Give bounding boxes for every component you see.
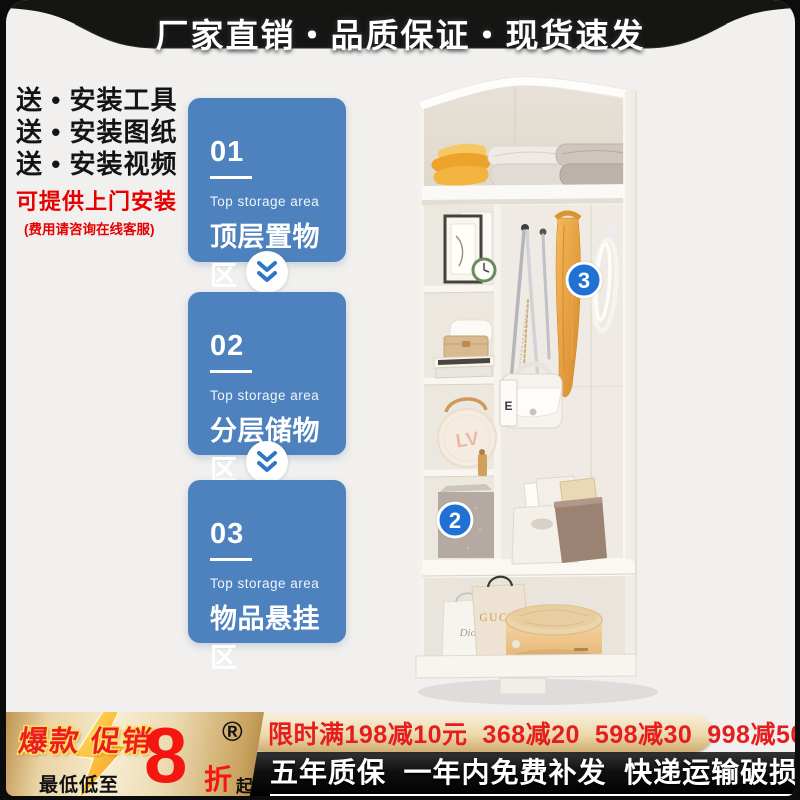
discount-digit: 8 <box>144 718 187 792</box>
product-photo-corner-shelf: LV <box>388 60 718 715</box>
gift-line-tools: 送 • 安装工具 <box>16 84 191 116</box>
install-note-text: (费用请咨询在线客服) <box>24 218 191 238</box>
feature-card-top-storage: 01 Top storage area 顶层置物区 <box>188 98 346 262</box>
feature-subtitle-en: Top storage area <box>210 194 346 209</box>
hot-sale-panel: 爆款 促销 最低低至 8 ® 折 起 <box>6 712 264 796</box>
marker-number: 3 <box>578 268 590 293</box>
marker-badge-2: 2 <box>437 502 474 539</box>
marker-badge-3: 3 <box>566 262 603 299</box>
gift-line-video: 送 • 安装视频 <box>16 148 191 180</box>
coupon-pill: 限时满198减10元 368减20 598减30 998减50 <box>246 714 713 752</box>
right-side-panel <box>624 91 636 664</box>
feature-number: 01 <box>210 138 346 167</box>
feature-underline <box>210 176 252 179</box>
chevron-down-connector <box>246 251 288 293</box>
promo-banner: 五年质保 一年内免费补发 快递运输破损包赔 限时满198减10元 368减20 … <box>6 712 795 796</box>
chevron-down-icon <box>252 257 282 287</box>
hot-sale-label: 爆款 促销 <box>16 718 155 760</box>
base-board <box>416 654 636 678</box>
feature-subtitle-en: Top storage area <box>210 388 346 403</box>
service-guarantee-bar: 五年质保 一年内免费补发 快递运输破损包赔 <box>242 752 795 796</box>
picture-frames-and-clock <box>445 212 495 284</box>
feature-card-layered-storage: 02 Top storage area 分层储物区 <box>188 292 346 455</box>
tag-letter: E <box>504 399 512 413</box>
service-guarantee-text: 五年质保 一年内免费补发 快递运输破损包赔 <box>270 751 795 796</box>
feature-underline <box>210 370 252 373</box>
base-foot <box>500 678 546 694</box>
page-title: 厂家直销・品质保证・现货速发 <box>6 9 795 57</box>
top-shelf-board <box>422 184 634 200</box>
lv-monogram: LV <box>455 428 481 452</box>
page-panel: 厂家直销・品质保证・现货速发 送 • 安装工具 送 • 安装图纸 送 • 安装视… <box>6 0 795 796</box>
feature-underline <box>210 558 252 561</box>
registered-trademark: ® <box>222 716 243 748</box>
folded-clothes <box>431 144 634 186</box>
storage-boxes <box>512 476 607 564</box>
chevron-down-connector <box>246 441 288 483</box>
lowest-price-label: 最低低至 <box>39 770 119 796</box>
feature-number: 02 <box>210 332 346 361</box>
marker-number: 2 <box>449 508 461 533</box>
install-offer-text: 可提供上门安装 <box>16 184 191 216</box>
coupon-text: 限时满198减10元 368减20 598减30 998减50 <box>268 715 795 751</box>
chevron-down-icon <box>252 447 282 477</box>
discount-unit: 折 <box>204 758 232 796</box>
feature-number: 03 <box>210 520 346 549</box>
feature-card-hanging-area: 03 Top storage area 物品悬挂区 <box>188 480 346 643</box>
gift-line-drawings: 送 • 安装图纸 <box>16 116 191 148</box>
feature-title-zh: 物品悬挂区 <box>210 597 346 675</box>
gift-info-block: 送 • 安装工具 送 • 安装图纸 送 • 安装视频 可提供上门安装 (费用请咨… <box>16 84 191 238</box>
feature-subtitle-en: Top storage area <box>210 576 346 591</box>
